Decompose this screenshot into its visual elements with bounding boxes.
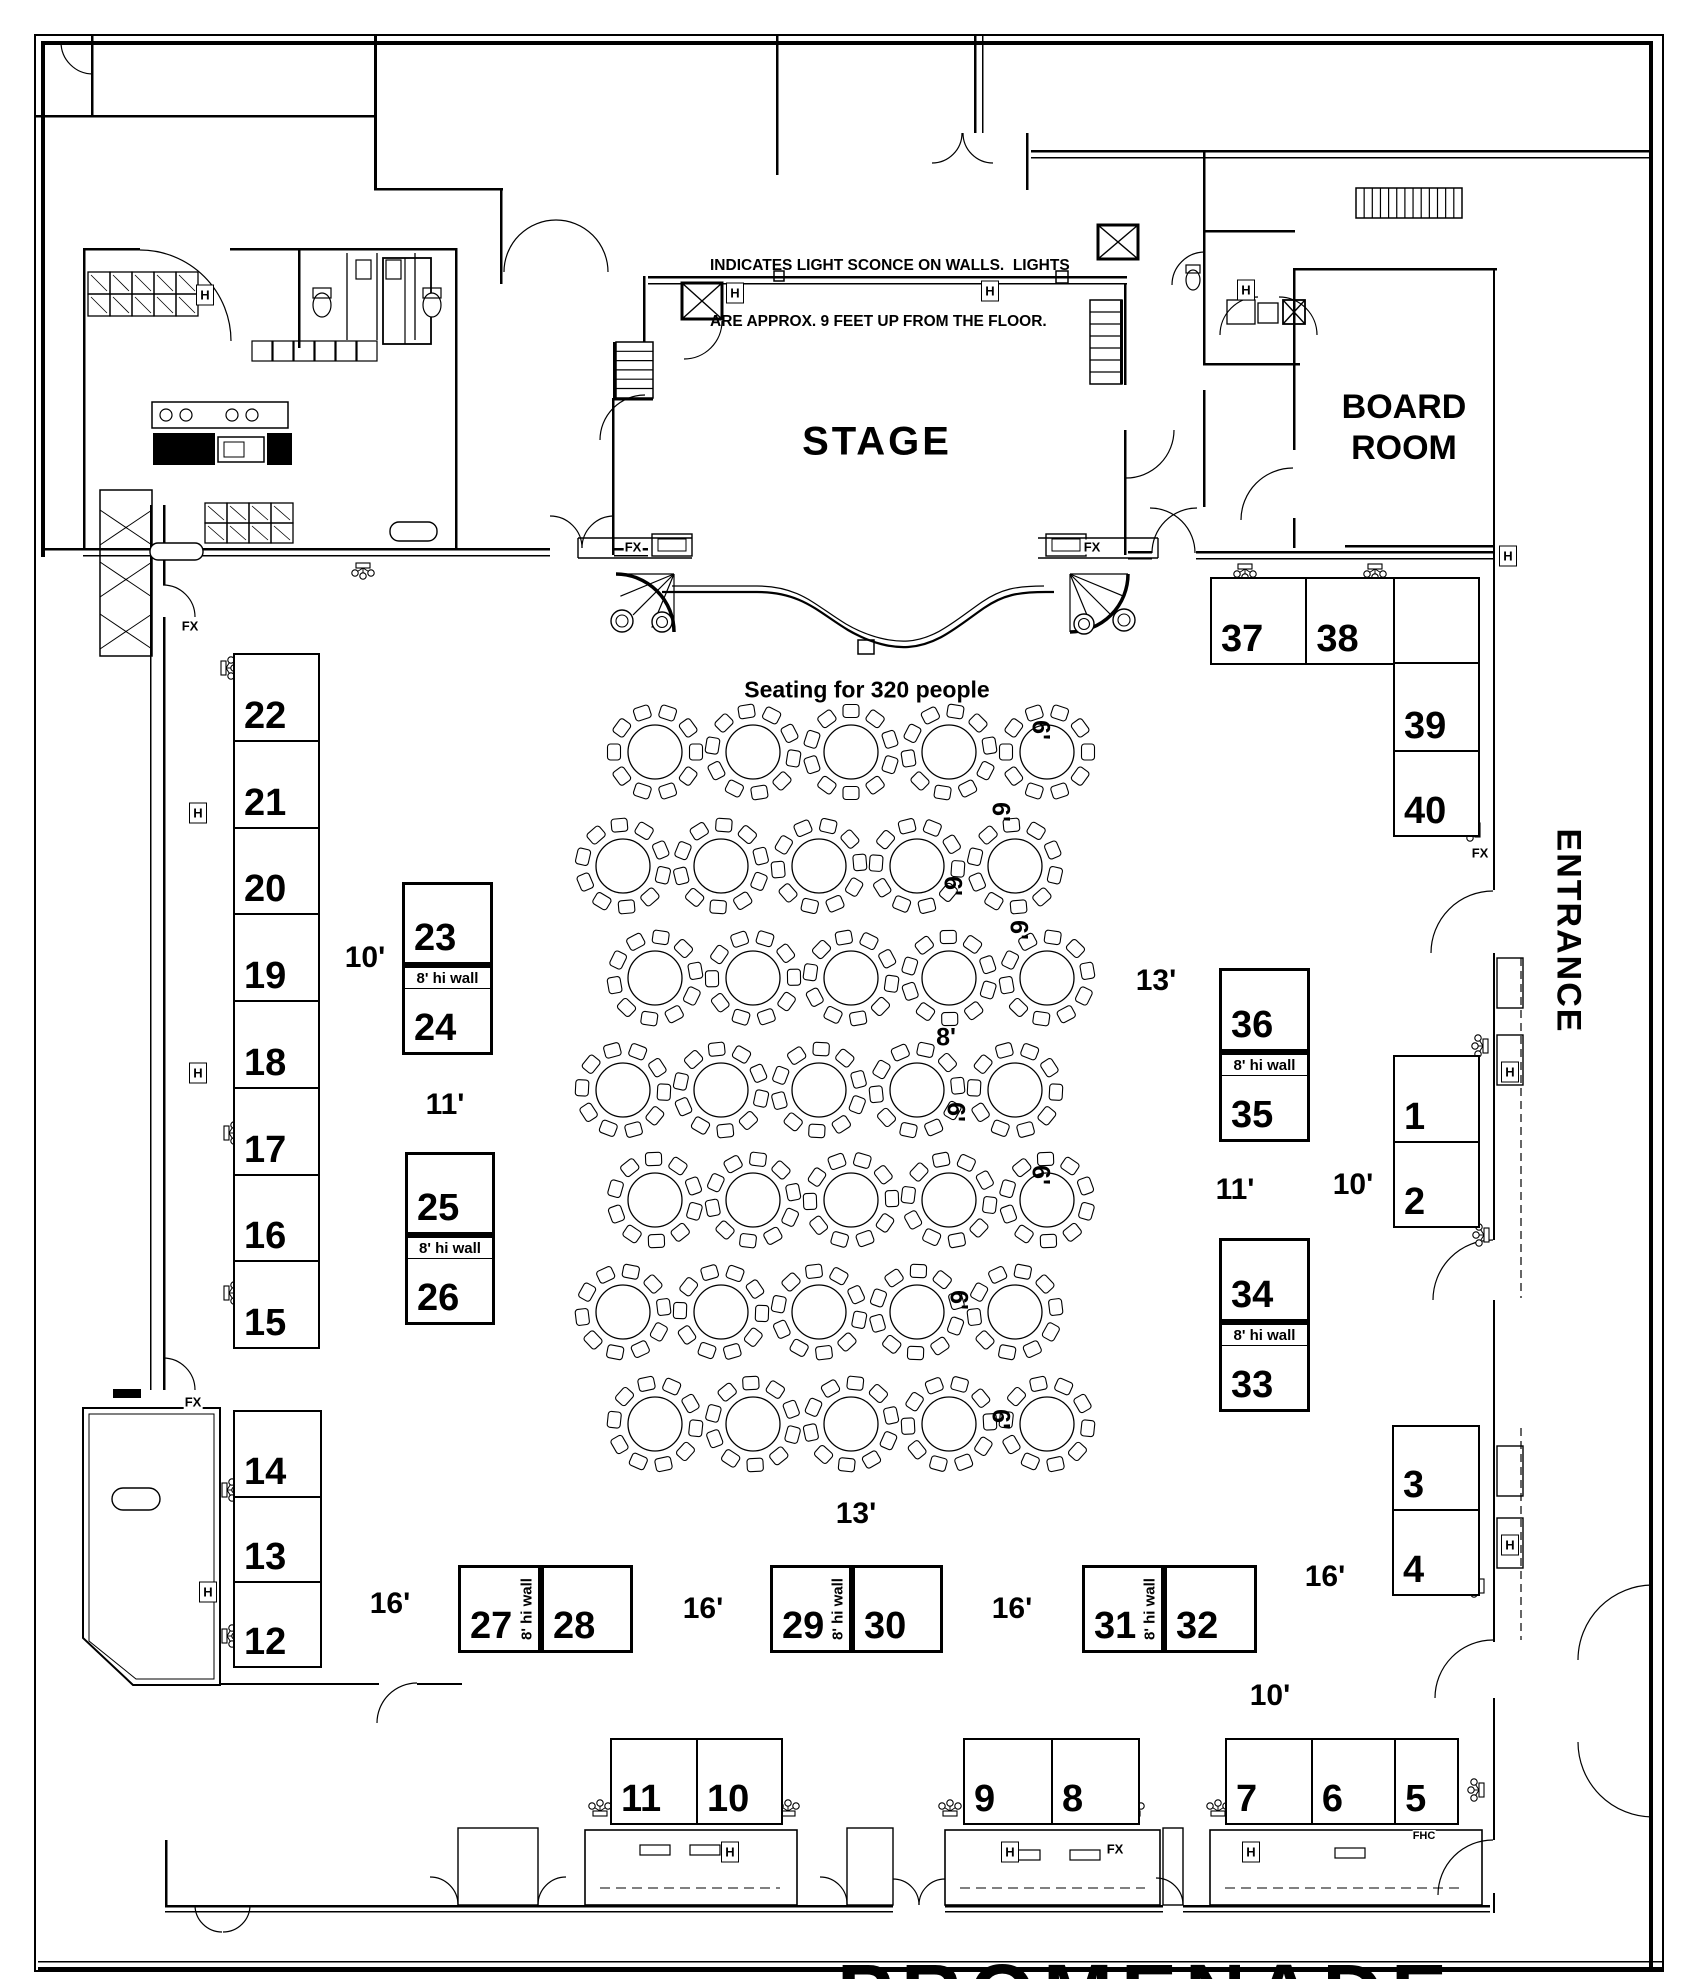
booth-23[interactable]: 23 <box>405 885 490 962</box>
booth-18[interactable]: 18 <box>235 1000 318 1087</box>
hi-wall-divider-label: 8' hi wall <box>1139 1568 1161 1650</box>
dimension-label: 10' <box>345 941 386 975</box>
booth-38[interactable]: 38 <box>1305 579 1393 663</box>
dimension-label: 11' <box>426 1088 465 1122</box>
booth-group: 765 <box>1225 1738 1459 1825</box>
hiwall-booth-group: 258' hi wall26 <box>405 1152 495 1325</box>
booth-group: 1110 <box>610 1738 783 1825</box>
booth-13[interactable]: 13 <box>235 1496 320 1580</box>
booth-group: 12 <box>1393 1055 1480 1228</box>
dimension-label: 10' <box>1250 1679 1291 1713</box>
legend-line-1: INDICATES LIGHT SCONCE ON WALLS. LIGHTS <box>710 257 1070 276</box>
hi-wall-divider-label: 8' hi wall <box>516 1568 538 1650</box>
promenade-label: PROMENADE <box>837 1946 1455 1979</box>
booth-34[interactable]: 34 <box>1222 1241 1307 1319</box>
dimension-label: 13' <box>836 1497 877 1531</box>
booth-33[interactable]: 33 <box>1222 1346 1307 1409</box>
table-size-label: 6' <box>1004 920 1033 940</box>
hiwall-booth-group: 278' hi wall28 <box>458 1565 633 1653</box>
booth-group: 34 <box>1392 1425 1480 1596</box>
stage-front-edge <box>611 574 1135 654</box>
dimension-label: 16' <box>683 1592 724 1626</box>
booth-group: 141312 <box>233 1410 322 1668</box>
stage-room-label: STAGE <box>802 420 952 465</box>
booth-group: 3940 <box>1393 577 1480 837</box>
hiwall-booth-group: 318' hi wall32 <box>1082 1565 1257 1653</box>
booth-21[interactable]: 21 <box>235 740 318 827</box>
booth-12[interactable]: 12 <box>235 1581 320 1666</box>
fx-marker: FX <box>184 1395 203 1410</box>
dimension-label: 11' <box>1216 1173 1255 1207</box>
hi-wall-divider-label: 8' hi wall <box>405 968 490 989</box>
booth-39[interactable]: 39 <box>1395 662 1478 749</box>
h-hardware-marker: H <box>1242 1842 1260 1863</box>
booth-3[interactable]: 3 <box>1394 1427 1478 1509</box>
legend-line-2: ARE APPROX. 9 FEET UP FROM THE FLOOR. <box>710 313 1070 332</box>
fx-marker: FX <box>1106 1842 1125 1857</box>
hi-wall-divider-label: 8' hi wall <box>827 1568 849 1650</box>
table-size-label: 6' <box>941 1102 970 1122</box>
fx-marker: FX <box>181 619 200 634</box>
table-size-label: 6' <box>1026 720 1055 740</box>
fx-marker: FX <box>624 540 643 555</box>
booth-37[interactable]: 37 <box>1212 579 1305 663</box>
booth-32[interactable]: 32 <box>1167 1568 1254 1650</box>
booth-26[interactable]: 26 <box>408 1259 492 1322</box>
h-hardware-marker: H <box>726 283 744 304</box>
booth-20[interactable]: 20 <box>235 827 318 914</box>
hiwall-booth-group: 298' hi wall30 <box>770 1565 943 1653</box>
table-size-label: 6' <box>944 1290 973 1310</box>
seating-capacity-note: Seating for 320 people <box>744 677 989 704</box>
booth-22[interactable]: 22 <box>235 655 318 740</box>
h-hardware-marker: H <box>981 281 999 302</box>
legend-note: INDICATES LIGHT SCONCE ON WALLS. LIGHTS … <box>710 220 1070 368</box>
h-hardware-marker: H <box>1501 1535 1519 1556</box>
dimension-label: 16' <box>1305 1560 1346 1594</box>
h-hardware-marker: H <box>1499 546 1517 567</box>
h-hardware-marker: H <box>189 1063 207 1084</box>
booth-25[interactable]: 25 <box>408 1155 492 1232</box>
booth-group: 2221201918171615 <box>233 653 320 1349</box>
booth-31[interactable]: 31 <box>1085 1568 1139 1650</box>
table-size-label: 6' <box>986 1409 1015 1429</box>
hiwall-booth-group: 368' hi wall35 <box>1219 968 1310 1142</box>
booth-9[interactable]: 9 <box>965 1740 1051 1823</box>
h-hardware-marker: H <box>721 1842 739 1863</box>
h-hardware-marker: H <box>1237 280 1255 301</box>
booth-14[interactable]: 14 <box>235 1412 320 1496</box>
hi-wall-divider-label: 8' hi wall <box>408 1238 492 1259</box>
h-hardware-marker: H <box>199 1582 217 1603</box>
entrance-label: ENTRANCE <box>1549 829 1588 1034</box>
hiwall-booth-group: 348' hi wall33 <box>1219 1238 1310 1412</box>
booth-15[interactable]: 15 <box>235 1260 318 1347</box>
booth-28[interactable]: 28 <box>544 1568 630 1650</box>
dimension-label: 13' <box>1136 964 1177 998</box>
board-room-label-line2: ROOM <box>1342 428 1467 469</box>
table-size-label: 8' <box>936 1024 956 1053</box>
board-room-label: BOARD ROOM <box>1342 387 1467 469</box>
booth-30[interactable]: 30 <box>855 1568 940 1650</box>
banquet-tables <box>575 704 1095 1472</box>
hiwall-booth-group: 238' hi wall24 <box>402 882 493 1055</box>
fhc-marker: FHC <box>1413 1830 1436 1842</box>
fx-marker: FX <box>1083 540 1102 555</box>
booth-2[interactable]: 2 <box>1395 1141 1478 1226</box>
booth-24[interactable]: 24 <box>405 989 490 1052</box>
fx-marker: FX <box>1471 846 1490 861</box>
booth-1[interactable]: 1 <box>1395 1057 1478 1141</box>
booth-5[interactable]: 5 <box>1394 1740 1457 1823</box>
booth-17[interactable]: 17 <box>235 1087 318 1174</box>
table-size-label: 6' <box>1026 1165 1055 1185</box>
hi-wall-divider-label: 8' hi wall <box>1222 1055 1307 1076</box>
booth-6[interactable]: 6 <box>1311 1740 1394 1823</box>
h-hardware-marker: H <box>1001 1842 1019 1863</box>
booth-7[interactable]: 7 <box>1227 1740 1311 1823</box>
booth-35[interactable]: 35 <box>1222 1076 1307 1139</box>
hi-wall-divider-label: 8' hi wall <box>1222 1325 1307 1346</box>
booth-10[interactable]: 10 <box>696 1740 781 1823</box>
h-hardware-marker: H <box>189 803 207 824</box>
booth-8[interactable]: 8 <box>1051 1740 1138 1823</box>
table-size-label: 6' <box>938 876 967 896</box>
booth-unlabeled[interactable] <box>1395 579 1478 662</box>
booth-40[interactable]: 40 <box>1395 750 1478 835</box>
booth-27[interactable]: 27 <box>461 1568 516 1650</box>
dimension-label: 10' <box>1333 1168 1374 1202</box>
h-hardware-marker: H <box>196 285 214 306</box>
dimension-label: 16' <box>992 1592 1033 1626</box>
booth-group: 3738 <box>1210 577 1395 665</box>
board-room-label-line1: BOARD <box>1342 387 1467 428</box>
booth-11[interactable]: 11 <box>612 1740 696 1823</box>
booth-29[interactable]: 29 <box>773 1568 827 1650</box>
dimension-label: 16' <box>370 1587 411 1621</box>
booth-16[interactable]: 16 <box>235 1174 318 1261</box>
h-hardware-marker: H <box>1501 1062 1519 1083</box>
floor-plan-canvas: INDICATES LIGHT SCONCE ON WALLS. LIGHTS … <box>0 0 1700 1979</box>
table-size-label: 6' <box>986 802 1015 822</box>
booth-36[interactable]: 36 <box>1222 971 1307 1049</box>
booth-4[interactable]: 4 <box>1394 1509 1478 1594</box>
booth-19[interactable]: 19 <box>235 913 318 1000</box>
booth-group: 98 <box>963 1738 1140 1825</box>
